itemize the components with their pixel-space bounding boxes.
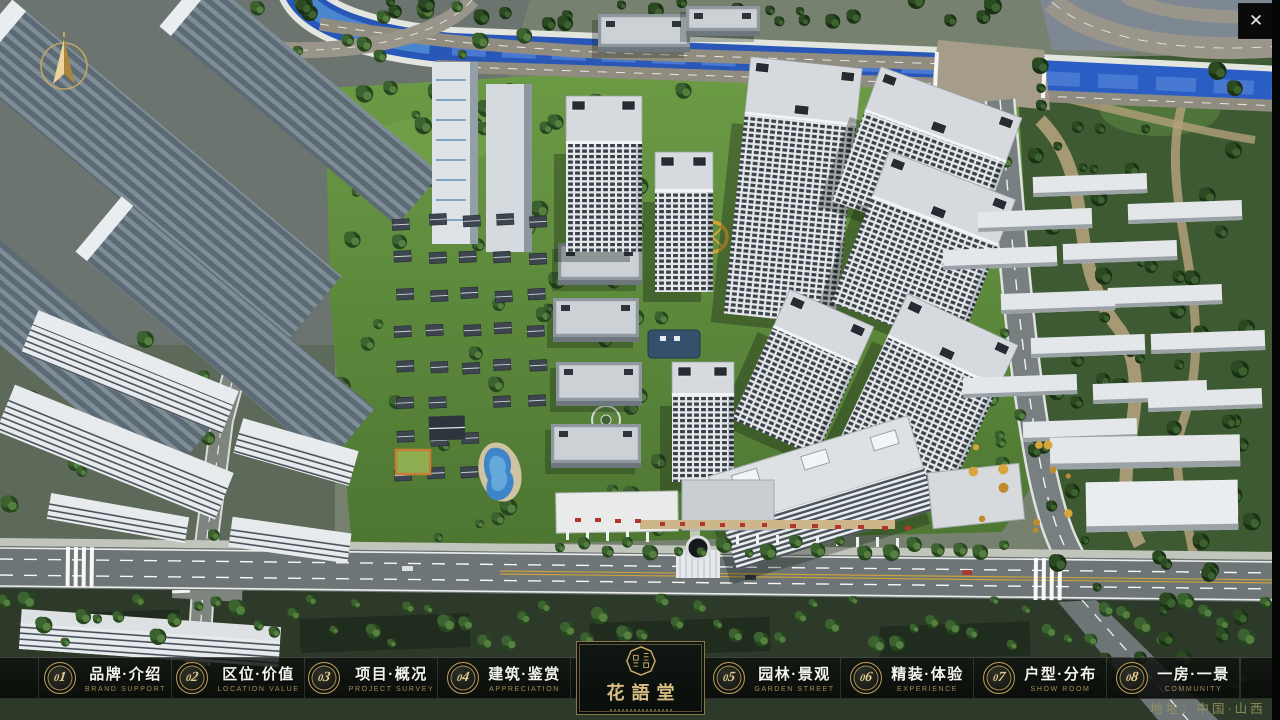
project-logo-button[interactable]: 花語堂 (576, 641, 705, 715)
nav-label-zh: 户型·分布 (1024, 663, 1097, 684)
nav-item-brand-intro[interactable]: 01 品牌·介绍BRAND SUPPORT (39, 658, 172, 698)
nav-label-en: LOCATION VALUE (217, 686, 299, 693)
nav-number: 02 (185, 671, 199, 685)
nav-number-badge: 05 (713, 662, 745, 694)
site-map-render (0, 0, 1280, 720)
nav-label-zh: 精装·体验 (891, 663, 964, 684)
nav-number-badge: 04 (447, 662, 479, 694)
nav-number: 03 (317, 671, 331, 685)
close-button[interactable]: ✕ (1238, 3, 1274, 39)
nav-item-location-value[interactable]: 02 区位·价值LOCATION VALUE (172, 658, 305, 698)
nav-number-badge: 03 (308, 662, 340, 694)
nav-number: 08 (1125, 671, 1139, 685)
nav-number-badge: 08 (1116, 662, 1148, 694)
nav-label-en: APPRECIATION (489, 686, 560, 693)
sales-app-window: 01 品牌·介绍BRAND SUPPORT 02 区位·价值LOCATION V… (0, 0, 1280, 720)
nav-label-zh: 区位·价值 (222, 663, 295, 684)
nav-number-badge: 06 (850, 662, 882, 694)
nav-number-badge: 01 (44, 662, 76, 694)
project-logo-title: 花語堂 (600, 679, 682, 705)
nav-label-en: SHOW ROOM (1031, 686, 1091, 693)
nav-item-architecture[interactable]: 04 建筑·鉴赏APPRECIATION (438, 658, 571, 698)
nav-label-en: PROJECT SURVEY (349, 686, 435, 693)
nav-label-zh: 项目·概况 (355, 663, 428, 684)
nav-item-room-view[interactable]: 08 一房·一景COMMUNITY (1107, 658, 1240, 698)
nav-label-zh: 一房·一景 (1157, 663, 1230, 684)
nav-number-badge: 07 (983, 662, 1015, 694)
nav-spacer-left (0, 658, 39, 698)
nav-item-floorplan-distribution[interactable]: 07 户型·分布SHOW ROOM (974, 658, 1107, 698)
nav-item-garden-landscape[interactable]: 05 园林·景观GARDEN STREET (708, 658, 841, 698)
nav-label-zh: 品牌·介绍 (89, 663, 162, 684)
nav-label-en: GARDEN STREET (754, 686, 834, 693)
nav-number: 06 (859, 671, 873, 685)
project-address: 地址：中国·山西 (1150, 698, 1266, 717)
project-logo-subtext (610, 709, 672, 711)
nav-label-zh: 建筑·鉴赏 (488, 663, 561, 684)
nav-label-en: COMMUNITY (1165, 686, 1223, 693)
screen-edge-strip (1272, 0, 1280, 720)
nav-label-en: BRAND SUPPORT (85, 686, 166, 693)
nav-label-zh: 园林·景观 (758, 663, 831, 684)
nav-label-en: EXPERIENCE (897, 686, 958, 693)
nav-number: 01 (53, 671, 67, 685)
nav-item-finishing-experience[interactable]: 06 精装·体验EXPERIENCE (841, 658, 974, 698)
nav-number-badge: 02 (176, 662, 208, 694)
nav-number: 05 (722, 671, 736, 685)
nav-number: 04 (456, 671, 470, 685)
nav-number: 07 (992, 671, 1006, 685)
seal-emblem-icon (625, 645, 657, 677)
nav-item-project-survey[interactable]: 03 项目·概况PROJECT SURVEY (305, 658, 438, 698)
